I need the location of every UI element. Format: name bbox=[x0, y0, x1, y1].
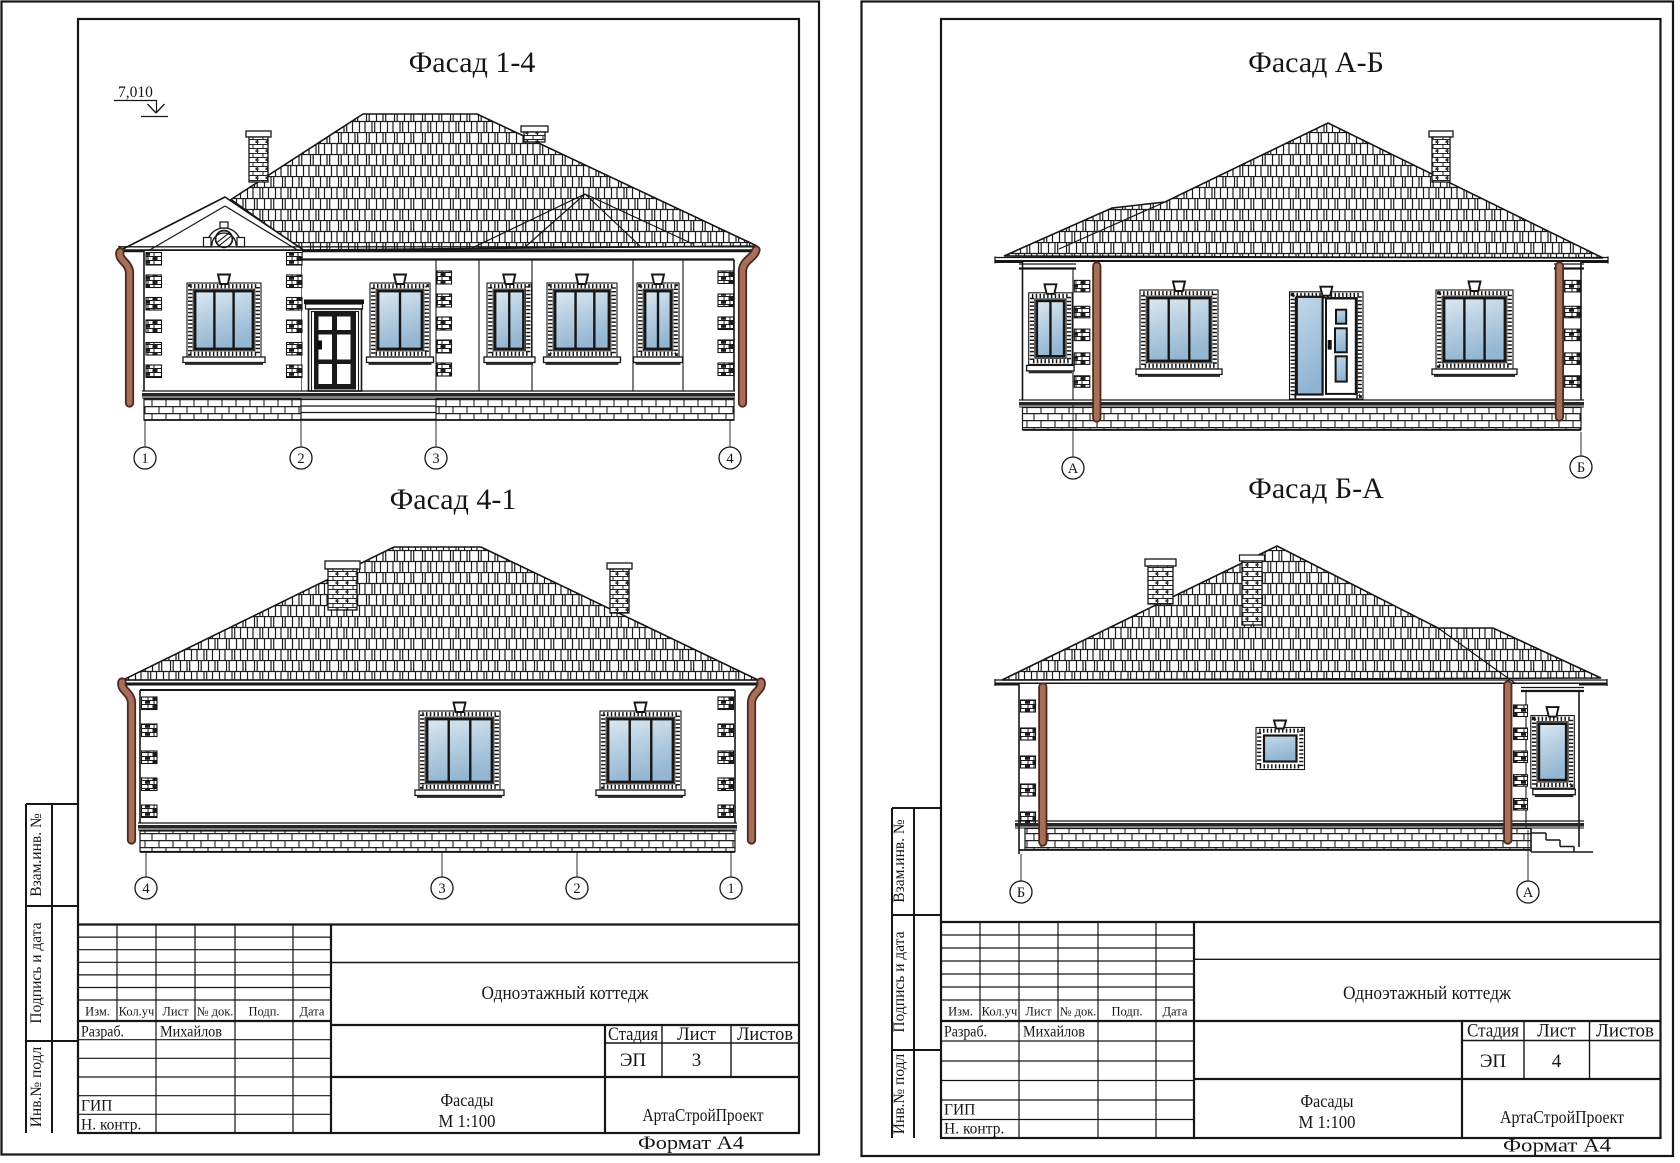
svg-text:Дата: Дата bbox=[300, 1005, 325, 1019]
svg-text:3: 3 bbox=[692, 1050, 702, 1071]
svg-text:Михайлов: Михайлов bbox=[1023, 1024, 1085, 1041]
svg-text:Изм.: Изм. bbox=[948, 1005, 973, 1019]
svg-text:Лист: Лист bbox=[677, 1025, 716, 1045]
svg-text:Изм.: Изм. bbox=[85, 1005, 110, 1019]
svg-text:Разраб.: Разраб. bbox=[81, 1024, 124, 1041]
svg-text:М 1:100: М 1:100 bbox=[439, 1111, 496, 1131]
svg-text:Стадия: Стадия bbox=[1467, 1022, 1519, 1042]
svg-text:Инв.№ подл: Инв.№ подл bbox=[891, 1053, 908, 1134]
svg-text:Подп.: Подп. bbox=[248, 1005, 279, 1019]
svg-text:ГИП: ГИП bbox=[944, 1102, 975, 1119]
svg-text:Разраб.: Разраб. bbox=[944, 1024, 987, 1041]
svg-text:1: 1 bbox=[727, 881, 734, 897]
svg-text:ЭП: ЭП bbox=[620, 1050, 647, 1071]
svg-text:Фасад 1-4: Фасад 1-4 bbox=[409, 46, 536, 79]
svg-text:Листов: Листов bbox=[737, 1025, 793, 1045]
svg-text:АртаСтройПроект: АртаСтройПроект bbox=[1500, 1107, 1624, 1127]
svg-text:Лист: Лист bbox=[1025, 1005, 1052, 1019]
svg-text:Одноэтажный коттедж: Одноэтажный коттедж bbox=[1343, 983, 1512, 1004]
svg-text:Михайлов: Михайлов bbox=[160, 1024, 222, 1041]
svg-text:Лист: Лист bbox=[1537, 1022, 1576, 1042]
svg-text:Фасад А-Б: Фасад А-Б bbox=[1248, 46, 1384, 79]
svg-text:3: 3 bbox=[438, 881, 445, 897]
svg-text:Фасад 4-1: Фасад 4-1 bbox=[390, 483, 517, 516]
svg-text:ЭП: ЭП bbox=[1480, 1051, 1507, 1072]
svg-text:3: 3 bbox=[432, 451, 439, 467]
svg-text:4: 4 bbox=[1552, 1051, 1562, 1072]
svg-text:2: 2 bbox=[297, 451, 304, 467]
svg-text:Взам.инв. №: Взам.инв. № bbox=[891, 819, 908, 903]
svg-text:Н. контр.: Н. контр. bbox=[944, 1121, 1004, 1138]
svg-text:Формат А4: Формат А4 bbox=[1503, 1136, 1612, 1157]
svg-text:Подпись и дата: Подпись и дата bbox=[891, 931, 908, 1032]
svg-text:№ док.: № док. bbox=[197, 1005, 234, 1019]
svg-text:№ док.: № док. bbox=[1060, 1005, 1097, 1019]
svg-text:Кол.уч: Кол.уч bbox=[119, 1005, 155, 1019]
svg-text:Фасад Б-А: Фасад Б-А bbox=[1248, 472, 1384, 505]
svg-text:Б: Б bbox=[1577, 460, 1585, 476]
svg-text:Взам.инв. №: Взам.инв. № bbox=[28, 813, 45, 897]
svg-text:Фасады: Фасады bbox=[441, 1090, 494, 1110]
svg-text:2: 2 bbox=[573, 881, 580, 897]
svg-text:Б: Б bbox=[1017, 885, 1025, 901]
svg-text:Фасады: Фасады bbox=[1301, 1091, 1354, 1111]
svg-text:1: 1 bbox=[141, 451, 148, 467]
svg-text:Одноэтажный коттедж: Одноэтажный коттедж bbox=[482, 983, 650, 1004]
svg-text:Н. контр.: Н. контр. bbox=[81, 1117, 141, 1134]
svg-text:Лист: Лист bbox=[162, 1005, 189, 1019]
svg-text:ГИП: ГИП bbox=[81, 1098, 112, 1115]
svg-text:А: А bbox=[1068, 461, 1079, 477]
svg-text:Инв.№ подл: Инв.№ подл bbox=[28, 1046, 45, 1127]
svg-text:Подпись и дата: Подпись и дата bbox=[28, 922, 45, 1023]
svg-text:М 1:100: М 1:100 bbox=[1299, 1112, 1356, 1132]
svg-text:7,010: 7,010 bbox=[118, 84, 153, 101]
svg-text:4: 4 bbox=[726, 451, 734, 467]
svg-text:А: А bbox=[1523, 885, 1534, 901]
svg-text:Дата: Дата bbox=[1163, 1005, 1188, 1019]
svg-text:Стадия: Стадия bbox=[608, 1025, 658, 1045]
svg-text:4: 4 bbox=[142, 881, 150, 897]
svg-text:Кол.уч: Кол.уч bbox=[982, 1005, 1018, 1019]
svg-text:Формат А4: Формат А4 bbox=[638, 1133, 745, 1154]
svg-text:Подп.: Подп. bbox=[1111, 1005, 1142, 1019]
svg-text:Листов: Листов bbox=[1596, 1022, 1654, 1042]
svg-text:АртаСтройПроект: АртаСтройПроект bbox=[643, 1105, 764, 1125]
